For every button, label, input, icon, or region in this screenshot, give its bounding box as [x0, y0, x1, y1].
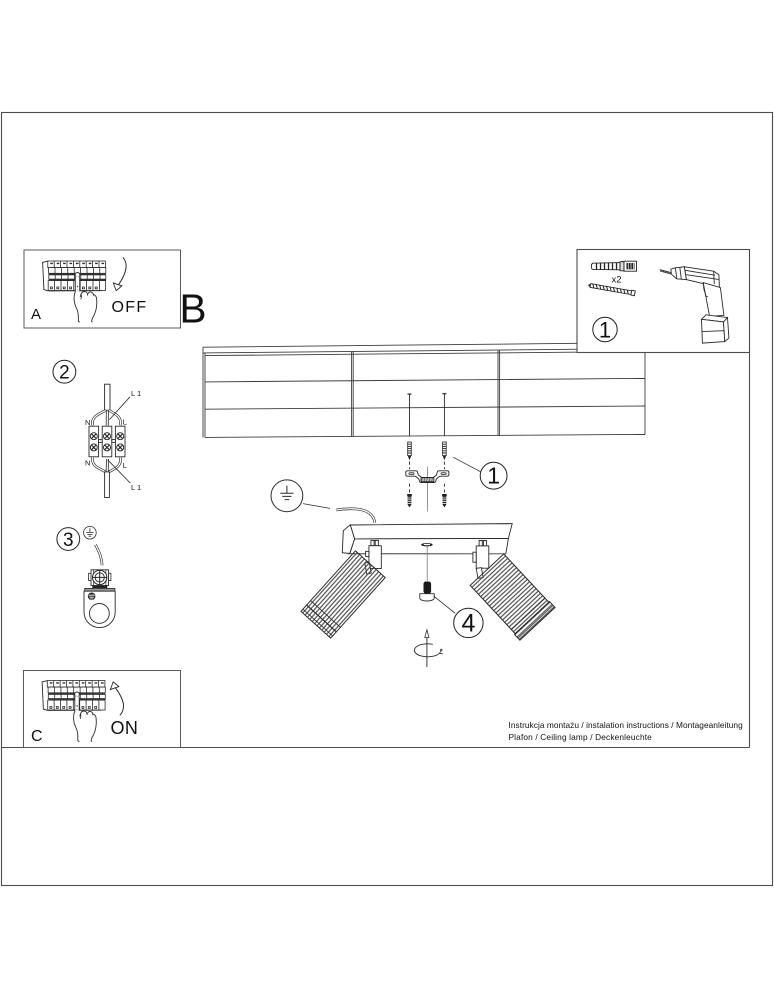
svg-text:L: L — [123, 461, 127, 470]
svg-text:OFF: OFF — [112, 299, 148, 316]
svg-text:N: N — [85, 418, 90, 427]
svg-text:C: C — [31, 728, 43, 745]
svg-text:Plafon / Ceiling lamp / Decken: Plafon / Ceiling lamp / Deckenleuchte — [509, 732, 653, 742]
svg-text:x2: x2 — [612, 275, 622, 286]
svg-text:Instrukcja montażu / instalati: Instrukcja montażu / instalation instruc… — [509, 720, 744, 730]
svg-text:A: A — [31, 306, 41, 323]
svg-text:3: 3 — [63, 530, 74, 551]
svg-text:ON: ON — [111, 718, 139, 738]
svg-text:L 1: L 1 — [131, 483, 141, 492]
svg-text:4: 4 — [461, 610, 475, 638]
svg-text:1: 1 — [599, 317, 611, 342]
svg-text:L 1: L 1 — [131, 389, 141, 398]
svg-text:1: 1 — [487, 463, 500, 489]
svg-text:B: B — [180, 286, 207, 332]
svg-text:2: 2 — [59, 363, 70, 384]
svg-text:L: L — [123, 418, 127, 427]
svg-text:N: N — [85, 459, 90, 468]
